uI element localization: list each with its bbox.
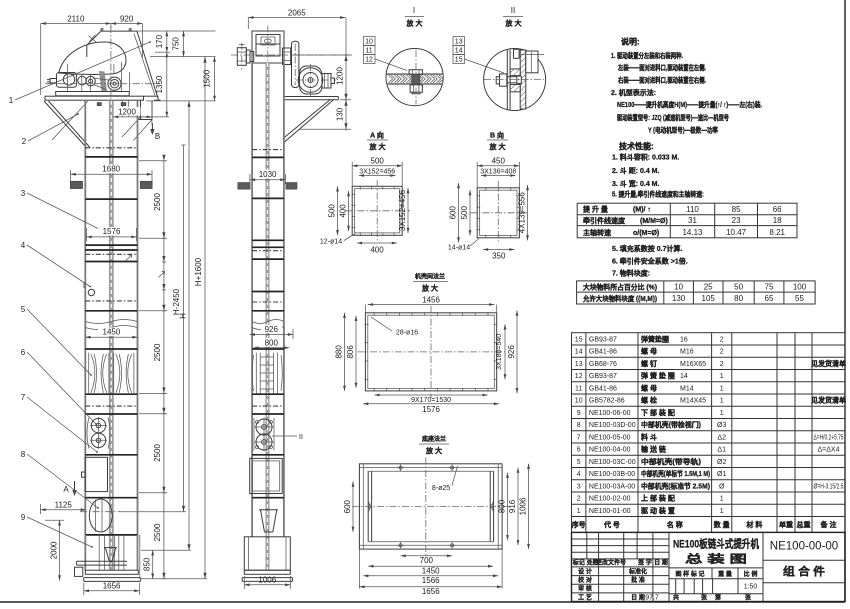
svg-text:弹 簧 垫 圈: 弹 簧 垫 圈	[641, 371, 675, 380]
svg-text:中部机壳(带检视门): 中部机壳(带检视门)	[641, 420, 701, 429]
svg-text:提 升 量: 提 升 量	[582, 205, 608, 214]
svg-text:技术性能:: 技术性能:	[619, 141, 654, 151]
svg-text:12: 12	[365, 57, 373, 64]
svg-text:1350: 1350	[155, 75, 164, 93]
svg-text:1450: 1450	[422, 566, 440, 575]
svg-text:H-2450: H-2450	[172, 288, 181, 315]
svg-text:7: 7	[577, 434, 581, 441]
svg-text:4X139=556: 4X139=556	[517, 192, 526, 234]
svg-text:M16X65: M16X65	[680, 361, 706, 368]
svg-text:单重: 单重	[779, 520, 793, 529]
svg-text:2: 2	[22, 137, 27, 146]
svg-text:11: 11	[365, 48, 372, 55]
svg-text:机壳间法兰: 机壳间法兰	[415, 273, 445, 281]
svg-text:926: 926	[507, 345, 516, 359]
svg-text:1: 1	[720, 373, 724, 380]
svg-text:驱动装置型号: JZQ (减速机型号)—速比—机型号: 驱动装置型号: JZQ (减速机型号)—速比—机型号	[617, 113, 729, 122]
svg-text:Y (电动机型号)—极数—功率: Y (电动机型号)—极数—功率	[648, 126, 718, 135]
svg-text:25: 25	[704, 283, 713, 292]
svg-text:3. 斗 宽: 0.4 M.: 3. 斗 宽: 0.4 M.	[612, 179, 660, 188]
svg-text:10: 10	[365, 39, 373, 46]
svg-text:o/(M=Ø): o/(M=Ø)	[633, 230, 659, 237]
svg-text:8-ø25: 8-ø25	[432, 485, 450, 492]
svg-text:A: A	[63, 485, 69, 494]
svg-text:800: 800	[497, 499, 506, 513]
svg-text:GB41-86: GB41-86	[589, 385, 617, 392]
svg-text:审 核: 审 核	[578, 585, 592, 593]
svg-text:1: 1	[720, 508, 724, 515]
svg-text:材 料: 材 料	[745, 520, 762, 529]
svg-text:组 合 件: 组 合 件	[783, 564, 825, 578]
svg-text:GB68-76: GB68-76	[589, 361, 617, 368]
svg-text:2. 机型表示法:: 2. 机型表示法:	[611, 88, 656, 97]
svg-text:标记: 标记	[572, 559, 585, 567]
svg-text:GB41-86: GB41-86	[589, 349, 617, 356]
svg-text:NE100-03D-00: NE100-03D-00	[589, 422, 636, 429]
svg-text:14.13: 14.13	[682, 228, 703, 237]
svg-text:数 量: 数 量	[714, 520, 730, 529]
svg-text:1:50: 1:50	[744, 584, 758, 591]
svg-text:13: 13	[575, 361, 583, 368]
svg-text:1: 1	[720, 410, 724, 417]
svg-text:GB93-87: GB93-87	[589, 373, 617, 380]
svg-text:M14: M14	[680, 385, 694, 392]
svg-text:110: 110	[686, 205, 699, 214]
svg-text:105: 105	[702, 294, 716, 303]
svg-text:9: 9	[21, 513, 26, 522]
svg-text:Δ1: Δ1	[717, 447, 726, 454]
svg-text:31: 31	[688, 216, 697, 225]
svg-text:NE100板链斗式提升机: NE100板链斗式提升机	[673, 537, 759, 551]
svg-text:驱 动 装 置: 驱 动 装 置	[641, 506, 675, 515]
svg-text:2: 2	[720, 349, 724, 356]
svg-text:1: 1	[720, 385, 724, 392]
svg-text:中部机壳(带导轨): 中部机壳(带导轨)	[641, 457, 701, 466]
svg-text:5: 5	[577, 459, 581, 466]
svg-text:400: 400	[370, 246, 384, 255]
svg-text:926: 926	[265, 325, 279, 334]
svg-text:A 向: A 向	[370, 131, 384, 140]
svg-text:M14X45: M14X45	[680, 398, 706, 405]
svg-text:14-ø14: 14-ø14	[448, 245, 470, 252]
svg-text:1450: 1450	[103, 328, 121, 337]
svg-text:NE100-03A-00: NE100-03A-00	[589, 483, 635, 490]
svg-text:名 称: 名 称	[667, 520, 683, 529]
svg-text:NE100-00-00: NE100-00-00	[770, 541, 838, 553]
svg-text:GB5782-86: GB5782-86	[589, 398, 625, 405]
svg-text:NE100-06-00: NE100-06-00	[589, 410, 631, 417]
svg-text:放 大: 放 大	[406, 19, 423, 28]
svg-text:14: 14	[575, 349, 583, 356]
svg-text:2110: 2110	[67, 14, 85, 23]
svg-text:1200: 1200	[118, 107, 136, 116]
svg-text:18: 18	[773, 216, 782, 225]
svg-text:13: 13	[455, 39, 463, 46]
svg-text:GB93-87: GB93-87	[589, 336, 617, 343]
svg-text:B: B	[155, 132, 160, 141]
svg-text:14: 14	[680, 373, 688, 380]
svg-text:Ø3: Ø3	[717, 422, 726, 429]
svg-text:NE100——提升机高度H(M)——提升量(↑/ ↑)——左: NE100——提升机高度H(M)——提升量(↑/ ↑)——左(右)装.	[617, 100, 762, 109]
svg-text:H: H	[179, 313, 188, 319]
svg-text:800: 800	[265, 338, 279, 347]
svg-text:65: 65	[765, 294, 774, 303]
svg-text:张: 张	[745, 594, 752, 602]
svg-text:2500: 2500	[153, 343, 162, 361]
svg-text:1: 1	[577, 508, 581, 515]
svg-text:10.47: 10.47	[726, 228, 747, 237]
svg-text:8.21: 8.21	[769, 228, 785, 237]
svg-text:H+1600: H+1600	[194, 257, 203, 286]
svg-text:750: 750	[172, 37, 181, 51]
svg-text:8: 8	[577, 422, 581, 429]
svg-text:见发货清单: 见发货清单	[811, 359, 846, 368]
svg-text:NE100-01-00: NE100-01-00	[589, 508, 631, 515]
svg-text:500: 500	[371, 157, 385, 166]
svg-text:中部机壳(单标节 1.5M,1 M): 中部机壳(单标节 1.5M,1 M)	[641, 469, 710, 478]
svg-text:牵引件线速度: 牵引件线速度	[583, 216, 626, 225]
svg-text:28-ø16: 28-ø16	[396, 330, 418, 337]
svg-text:500: 500	[460, 206, 469, 220]
svg-text:100: 100	[793, 283, 807, 292]
svg-text:张: 张	[701, 594, 708, 602]
svg-text:NE100-05-00: NE100-05-00	[589, 434, 631, 441]
svg-text:880: 880	[334, 345, 343, 359]
svg-text:放 大: 放 大	[425, 446, 442, 455]
svg-text:5. 填充系数按 0.7计算.: 5. 填充系数按 0.7计算.	[612, 244, 682, 253]
svg-text:见发货清单: 见发货清单	[811, 396, 846, 405]
svg-text:6. 牵引件安全系数 >1倍.: 6. 牵引件安全系数 >1倍.	[612, 257, 688, 266]
svg-text:料 斗: 料 斗	[641, 432, 657, 441]
svg-text:螺 钉: 螺 钉	[641, 359, 657, 368]
svg-text:850: 850	[143, 557, 152, 571]
svg-text:设 计: 设 计	[578, 568, 592, 576]
svg-text:第: 第	[714, 594, 721, 602]
svg-text:共: 共	[673, 594, 679, 602]
svg-text:1576: 1576	[422, 405, 440, 414]
svg-text:允许大块物料块度 ((M,M)): 允许大块物料块度 ((M,M))	[582, 294, 657, 303]
svg-text:底座法兰: 底座法兰	[422, 435, 446, 443]
svg-text:备 注: 备 注	[820, 520, 837, 529]
svg-text:1200: 1200	[336, 67, 345, 85]
svg-text:1030: 1030	[259, 170, 277, 179]
svg-text:批 准: 批 准	[631, 576, 645, 584]
svg-text:600: 600	[448, 206, 457, 220]
svg-text:II: II	[299, 434, 303, 441]
svg-text:(M)/ ↑: (M)/ ↑	[633, 207, 651, 214]
svg-text:10: 10	[674, 283, 683, 292]
svg-text:右装——面对进料口,驱动装置在右侧.: 右装——面对进料口,驱动装置在右侧.	[617, 76, 706, 85]
svg-text:放 大: 放 大	[505, 19, 522, 28]
svg-text:日 期: 日 期	[654, 559, 668, 567]
svg-text:2500: 2500	[153, 193, 162, 211]
svg-text:II: II	[511, 6, 515, 15]
svg-text:输 送 链: 输 送 链	[641, 445, 666, 454]
svg-text:螺 母: 螺 母	[641, 347, 657, 356]
svg-text:NE100-03B-00: NE100-03B-00	[589, 471, 635, 478]
svg-text:弹簧垫圈: 弹簧垫圈	[641, 334, 669, 343]
svg-text:螺 母: 螺 母	[641, 383, 657, 392]
svg-text:Δ=H/0.2+5.75: Δ=H/0.2+5.75	[814, 434, 844, 441]
svg-text:1566: 1566	[422, 576, 440, 585]
svg-text:比 例: 比 例	[744, 570, 758, 578]
svg-text:2000: 2000	[49, 541, 58, 559]
svg-text:15: 15	[455, 57, 463, 64]
svg-text:I: I	[413, 6, 415, 15]
svg-text:标准化: 标准化	[628, 568, 647, 576]
svg-text:3: 3	[577, 483, 581, 490]
svg-text:12: 12	[575, 373, 583, 380]
svg-text:校 对: 校 对	[578, 576, 592, 584]
svg-text:1006: 1006	[518, 497, 527, 515]
svg-text:说明:: 说明:	[621, 37, 640, 47]
svg-text:10: 10	[575, 398, 583, 405]
svg-text:放 大: 放 大	[421, 284, 438, 293]
svg-text:重 量: 重 量	[718, 570, 732, 578]
svg-text:350: 350	[492, 252, 506, 261]
svg-text:中部机壳(标准节 2.5M): 中部机壳(标准节 2.5M)	[641, 481, 710, 490]
svg-text:主轴转速: 主轴转速	[583, 228, 611, 237]
svg-text:工 艺: 工 艺	[578, 593, 592, 601]
svg-text:序号: 序号	[571, 520, 586, 529]
svg-text:97.7: 97.7	[645, 595, 659, 602]
svg-text:130: 130	[336, 107, 345, 121]
svg-text:1. 料斗容积: 0.033 M.: 1. 料斗容积: 0.033 M.	[612, 153, 679, 162]
svg-text:7: 7	[21, 393, 26, 402]
svg-text:Ø=H-3.15/2.5: Ø=H-3.15/2.5	[814, 483, 844, 490]
svg-text:6: 6	[21, 348, 26, 357]
svg-text:3X180=540: 3X180=540	[496, 334, 503, 370]
svg-text:Δ=ΔX4: Δ=ΔX4	[817, 447, 839, 454]
svg-text:85: 85	[732, 205, 741, 214]
svg-text:700: 700	[420, 556, 434, 565]
svg-text:4: 4	[577, 471, 581, 478]
svg-text:1125: 1125	[55, 501, 73, 510]
svg-text:左装——面对进料口,驱动装置在左侧.: 左装——面对进料口,驱动装置在左侧.	[617, 63, 706, 72]
svg-text:1. 驱动装置分左装和右装两种.: 1. 驱动装置分左装和右装两种.	[611, 51, 683, 60]
svg-text:50: 50	[734, 283, 743, 292]
svg-text:NE100-04-00: NE100-04-00	[589, 447, 631, 454]
svg-text:下 部 装 配: 下 部 装 配	[641, 408, 675, 417]
svg-text:500: 500	[327, 204, 336, 218]
svg-text:3: 3	[21, 189, 26, 198]
svg-text:75: 75	[765, 283, 774, 292]
svg-text:55: 55	[795, 294, 804, 303]
svg-text:NE100-02-00: NE100-02-00	[589, 496, 631, 503]
svg-text:总重: 总重	[797, 520, 811, 529]
svg-text:Δ2: Δ2	[717, 434, 726, 441]
svg-text:920: 920	[120, 14, 134, 23]
svg-text:1: 1	[720, 496, 724, 503]
svg-text:6: 6	[577, 447, 581, 454]
svg-text:2: 2	[577, 496, 581, 503]
svg-text:1680: 1680	[102, 165, 120, 174]
svg-text:15: 15	[575, 336, 583, 343]
svg-text:80: 80	[734, 294, 743, 303]
svg-text:7. 物料块度:: 7. 物料块度:	[612, 269, 650, 278]
svg-text:2500: 2500	[153, 444, 162, 462]
svg-text:170: 170	[155, 34, 164, 48]
svg-text:螺 栓: 螺 栓	[641, 396, 657, 405]
svg-text:签 字: 签 字	[637, 559, 652, 567]
svg-text:1: 1	[720, 398, 724, 405]
svg-text:1656: 1656	[422, 587, 440, 596]
svg-text:Ø: Ø	[719, 483, 725, 490]
svg-text:9: 9	[577, 410, 581, 417]
svg-text:11: 11	[575, 385, 582, 392]
svg-text:916: 916	[508, 499, 517, 513]
svg-text:1: 1	[9, 96, 14, 105]
svg-text:Ø1: Ø1	[717, 471, 726, 478]
svg-text:代 号: 代 号	[603, 520, 620, 529]
svg-text:450: 450	[492, 157, 506, 166]
svg-text:130: 130	[672, 294, 686, 303]
svg-text:放 大: 放 大	[369, 142, 386, 151]
svg-text:2: 2	[720, 336, 724, 343]
svg-text:M16: M16	[680, 349, 694, 356]
svg-text:(M/M=Ø): (M/M=Ø)	[640, 218, 668, 225]
svg-text:806: 806	[346, 345, 355, 359]
svg-text:1656: 1656	[103, 582, 121, 591]
svg-text:23: 23	[732, 216, 741, 225]
svg-text:4: 4	[21, 241, 26, 250]
svg-text:NE100-03C-00: NE100-03C-00	[589, 459, 636, 466]
svg-text:2. 斗 距: 0.4 M.: 2. 斗 距: 0.4 M.	[612, 166, 660, 175]
svg-text:2500: 2500	[153, 523, 162, 541]
svg-text:更改文件号: 更改文件号	[596, 559, 626, 567]
svg-text:2: 2	[720, 361, 724, 368]
svg-text:400: 400	[338, 204, 347, 218]
svg-text:I: I	[83, 283, 85, 290]
svg-text:3X136=408: 3X136=408	[480, 168, 516, 175]
svg-text:1500: 1500	[203, 69, 212, 87]
svg-text:600: 600	[343, 499, 352, 513]
svg-text:1576: 1576	[103, 227, 121, 236]
svg-text:9X170=1530: 9X170=1530	[411, 397, 451, 404]
svg-text:放 大: 放 大	[489, 142, 506, 151]
svg-text:B 向: B 向	[490, 131, 504, 140]
svg-text:14: 14	[455, 48, 463, 55]
svg-text:16: 16	[680, 336, 688, 343]
svg-text:8: 8	[21, 450, 26, 459]
svg-text:大块物料所占百分比 (%): 大块物料所占百分比 (%)	[583, 282, 657, 291]
svg-text:3X152=456: 3X152=456	[359, 168, 395, 175]
svg-text:1456: 1456	[422, 295, 440, 304]
svg-text:图 样 标 记: 图 样 标 记	[675, 570, 704, 578]
svg-text:2065: 2065	[288, 8, 306, 17]
svg-text:5. 提升量,牵引件线速度和主轴转速:: 5. 提升量,牵引件线速度和主轴转速:	[612, 190, 704, 199]
svg-text:5: 5	[21, 305, 26, 314]
svg-text:3X152=456: 3X152=456	[398, 189, 407, 231]
svg-text:12-ø14: 12-ø14	[320, 239, 342, 246]
svg-text:总 装 图: 总 装 图	[685, 552, 747, 566]
svg-text:Ø2: Ø2	[717, 459, 726, 466]
svg-text:上 部 装 配: 上 部 装 配	[641, 494, 675, 503]
svg-text:日 期: 日 期	[631, 593, 645, 601]
svg-text:1006: 1006	[258, 576, 276, 585]
svg-text:66: 66	[773, 205, 782, 214]
